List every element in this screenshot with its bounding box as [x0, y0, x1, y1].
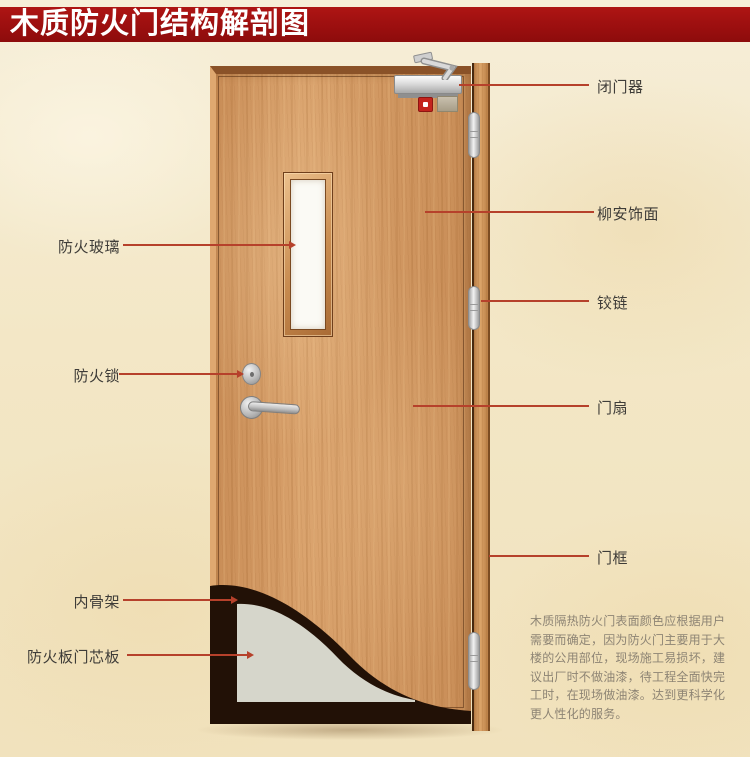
description-line: 工时，在现场做油漆。达到更科学化	[530, 686, 730, 705]
fire-door-infographic: 木质防火门结构解剖图 防火玻璃 防火锁 内骨架 防火板门芯板 闭门器 柳安饰面 …	[0, 0, 750, 757]
alarm-indicator	[418, 97, 433, 112]
leader-line-lauan-veneer	[425, 211, 594, 213]
annotation-label-door-closer: 闭门器	[597, 76, 644, 97]
description-line: 需要而确定，因为防火门主要用于大	[530, 631, 730, 650]
page-title: 木质防火门结构解剖图	[0, 7, 750, 42]
annotation-label-core-board: 防火板门芯板	[18, 646, 120, 667]
description-line: 木质隔热防火门表面颜色应根据用户	[530, 612, 730, 631]
leader-line-inner-skeleton	[123, 599, 231, 601]
leader-line-hinge	[481, 300, 589, 302]
leader-line-door-closer	[459, 84, 589, 86]
leader-line-fire-lock	[119, 373, 237, 375]
annotation-label-door-frame: 门框	[597, 547, 628, 568]
description-line: 更人性化的服务。	[530, 705, 730, 724]
description-line: 楼的公用部位，现场施工易损坏，建	[530, 649, 730, 668]
annotation-label-fire-lock: 防火锁	[18, 365, 120, 386]
fire-glass-window	[283, 172, 333, 337]
description-line: 议出厂时不做油漆，待工程全面快完	[530, 668, 730, 687]
fire-glass-pane	[290, 179, 326, 330]
hinge-bottom	[468, 632, 480, 690]
annotation-label-hinge: 铰链	[597, 292, 628, 313]
closer-arm-pivot	[449, 65, 454, 70]
leader-line-door-leaf	[413, 405, 589, 407]
door-closer-arm	[394, 50, 474, 80]
annotation-label-lauan-veneer: 柳安饰面	[597, 203, 659, 224]
leader-line-door-frame	[489, 555, 589, 557]
leader-line-core-board	[127, 654, 247, 656]
leader-line-fire-glass	[123, 244, 289, 246]
annotation-label-door-leaf: 门扇	[597, 397, 628, 418]
annotation-label-inner-skeleton: 内骨架	[18, 591, 120, 612]
hinge-top	[468, 112, 480, 158]
description-text: 木质隔热防火门表面颜色应根据用户 需要而确定，因为防火门主要用于大 楼的公用部位…	[530, 612, 730, 724]
mounting-plate	[437, 96, 458, 112]
door-frame	[472, 63, 490, 731]
keyhole-escutcheon	[242, 363, 261, 385]
annotation-label-fire-glass: 防火玻璃	[18, 236, 120, 257]
title-banner: 木质防火门结构解剖图	[0, 7, 750, 42]
hinge-middle	[468, 286, 480, 330]
